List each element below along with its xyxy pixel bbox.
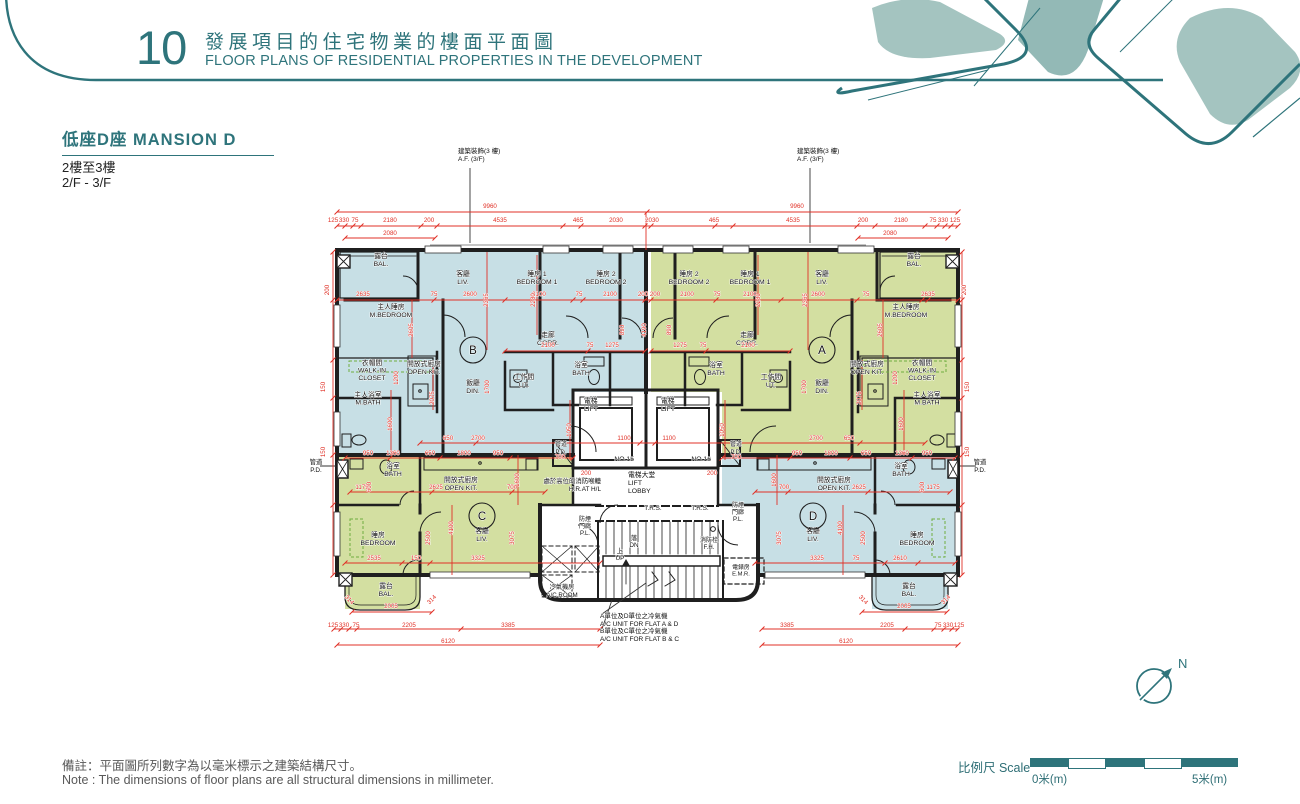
room-label: 開放式廚房OPEN KIT. xyxy=(817,475,851,492)
room-label: 衣帽間WALK-INCLOSET xyxy=(908,358,936,382)
dim-label: 2280 xyxy=(755,293,762,307)
dim-label: 890 xyxy=(619,324,626,335)
scale-segment xyxy=(1106,758,1144,767)
room-label: A單位及D單位之冷氣機A/C UNIT FOR FLAT A & D xyxy=(600,611,679,628)
dim-label: 650 xyxy=(861,450,872,457)
dim-label: 4100 xyxy=(837,521,844,535)
dim-label: 2280 xyxy=(530,293,537,307)
dim-label: 200 xyxy=(324,284,331,295)
room-label: 浴室BATH xyxy=(572,360,590,377)
room-label: 落DN xyxy=(629,533,639,549)
dim-label: 75 xyxy=(700,342,707,349)
room-label: 管道P.D. xyxy=(974,457,987,474)
dim-label: 75 xyxy=(863,291,870,298)
dim-label: 2700 xyxy=(809,435,823,442)
dim-label: 2635 xyxy=(921,291,935,298)
dim-label: 1360 xyxy=(895,450,909,457)
dim-label: 3325 xyxy=(810,555,824,562)
dim-label: 200 xyxy=(581,470,592,477)
room-label: 浴室BATH xyxy=(384,461,402,478)
dim-label: 2075 xyxy=(856,391,863,405)
dim-label: 200 xyxy=(961,284,968,295)
dim-label: 1275 xyxy=(605,342,619,349)
room-label: 露台BAL. xyxy=(907,251,922,268)
dim-label: 200 xyxy=(650,291,661,298)
room-label: 電梯LIFT xyxy=(584,396,598,413)
dim-label: 2535 xyxy=(367,555,381,562)
room-label: 飯廳DIN. xyxy=(466,378,480,395)
dim-label: 2625 xyxy=(852,484,866,491)
dim-label: 3385 xyxy=(501,622,515,629)
dim-label: 1600 xyxy=(771,473,778,487)
dim-label: 125 xyxy=(950,217,961,224)
dim-label: 950 xyxy=(922,450,933,457)
room-label: T.R.S. xyxy=(691,505,709,512)
room-label: T.R.S. xyxy=(644,505,662,512)
dim-label: 2205 xyxy=(880,622,894,629)
dim-label: 330 xyxy=(339,217,350,224)
page: 10 發展項目的住宅物業的樓面平面圖 FLOOR PLANS OF RESIDE… xyxy=(0,0,1300,804)
dim-label: 200 xyxy=(424,217,435,224)
room-label: 浴室BATH xyxy=(707,360,725,377)
dim-label: 1175 xyxy=(926,484,940,491)
room-label: 電錶房E.M.R. xyxy=(732,563,750,578)
flat-letter: B xyxy=(469,345,477,357)
dim-label: 650 xyxy=(425,450,436,457)
dim-label: 1050 xyxy=(719,423,726,437)
dim-label: 125 xyxy=(954,622,965,629)
dim-label: 600 xyxy=(919,481,926,492)
dim-label: 2100 xyxy=(680,291,694,298)
page-title-zh: 發展項目的住宅物業的樓面平面圖 xyxy=(205,27,558,54)
dim-label: 1100 xyxy=(662,435,676,442)
dim-label: 150 xyxy=(964,381,971,392)
dim-label: 2365 xyxy=(802,293,809,307)
room-label: 露台BAL. xyxy=(902,581,917,598)
note-en: Note : The dimensions of floor plans are… xyxy=(62,773,494,787)
dim-label: 2180 xyxy=(383,217,397,224)
room-label: 開放式廚房OPEN KIT. xyxy=(850,359,884,376)
dim-label: 330 xyxy=(938,217,949,224)
room-label: NO.15 xyxy=(614,456,634,463)
room-label: 主人浴室M.BATH xyxy=(913,390,940,407)
dim-label: 465 xyxy=(573,217,584,224)
room-label: 上UP xyxy=(616,546,625,562)
dim-label: 2205 xyxy=(402,622,416,629)
dim-label: 890 xyxy=(666,324,673,335)
dim-label: 3385 xyxy=(780,622,794,629)
dim-label: 1100 xyxy=(617,435,631,442)
dim-label: 200 xyxy=(707,470,718,477)
dim-label: 4535 xyxy=(786,217,800,224)
room-label: 飯廳DIN. xyxy=(815,378,829,395)
room-label: 建築裝飾(3 樓)A.F. (3/F) xyxy=(797,146,839,163)
dim-label: 1200 xyxy=(393,371,400,385)
scale-segment xyxy=(1068,758,1106,769)
scale-zero-label: 0米(m) xyxy=(1032,771,1067,787)
dim-label: 950 xyxy=(363,450,374,457)
dim-label: 3325 xyxy=(471,555,485,562)
dim-label: 2700 xyxy=(471,435,485,442)
dim-label: 3075 xyxy=(509,531,516,545)
dim-label: 650 xyxy=(844,435,855,442)
north-indicator: N xyxy=(1118,648,1208,718)
dim-label: 1275 xyxy=(673,342,687,349)
flat-letter: C xyxy=(478,511,486,523)
dim-label: 700 xyxy=(555,454,566,461)
room-label: 電梯LIFT xyxy=(661,396,675,413)
dim-label: 600 xyxy=(366,481,373,492)
dim-label: 2605 xyxy=(408,323,415,337)
dim-label: 2005 xyxy=(384,603,398,610)
dim-label: 330 xyxy=(339,622,350,629)
dim-label: 2100 xyxy=(603,291,617,298)
dim-label: 950 xyxy=(493,450,504,457)
dim-label: 200 xyxy=(858,217,869,224)
dim-label: 150 xyxy=(411,555,422,562)
dim-label: 1600 xyxy=(898,417,905,431)
room-label: B單位及C單位之冷氣機A/C UNIT FOR FLAT B & C xyxy=(600,626,679,643)
dim-label: 75 xyxy=(352,217,359,224)
block-title: 低座D座 MANSION D xyxy=(62,126,274,156)
floor-range-zh: 2樓至3樓 xyxy=(62,157,115,176)
room-label: 客廳LIV. xyxy=(456,269,470,286)
room-label: 客廳LIV. xyxy=(815,269,829,286)
dim-label: 314 xyxy=(857,594,870,607)
room-label: 主人浴室M.BATH xyxy=(354,390,381,407)
dim-label: 75 xyxy=(353,622,360,629)
dim-label: 75 xyxy=(935,622,942,629)
flat-letter: D xyxy=(809,511,817,523)
room-label: 衣帽間WALK-INCLOSET xyxy=(358,358,386,382)
dim-label: 1050 xyxy=(566,423,573,437)
scale-label: 比例尺 Scale xyxy=(958,757,1030,776)
scale-bar xyxy=(1030,758,1238,767)
dim-label: 75 xyxy=(714,291,721,298)
dim-label: 2080 xyxy=(383,230,397,237)
dim-label: 950 xyxy=(792,450,803,457)
dim-label: 4535 xyxy=(493,217,507,224)
scale-segment xyxy=(1030,758,1068,767)
dim-label: 314 xyxy=(426,593,439,606)
scale-five-label: 5米(m) xyxy=(1192,771,1227,787)
dim-label: 6120 xyxy=(839,638,853,645)
room-label: 電梯大堂LIFTLOBBY xyxy=(628,470,655,495)
room-label: 開放式廚房OPEN KIT. xyxy=(444,475,478,492)
dim-label: 2600 xyxy=(811,291,825,298)
dim-label: 75 xyxy=(431,291,438,298)
dim-label: 75 xyxy=(853,555,860,562)
dim-label: 650 xyxy=(443,435,454,442)
dim-label: 1360 xyxy=(386,450,400,457)
room-label: 露台BAL. xyxy=(374,251,389,268)
dim-label: 9960 xyxy=(790,203,804,210)
dim-label: 75 xyxy=(587,342,594,349)
dim-label: 150 xyxy=(320,381,327,392)
dim-label: 2625 xyxy=(429,484,443,491)
dim-label: 465 xyxy=(709,217,720,224)
dim-label: 1700 xyxy=(484,380,491,394)
dim-label: 2180 xyxy=(894,217,908,224)
dim-label: 2080 xyxy=(883,230,897,237)
dim-label: 700 xyxy=(779,484,790,491)
dim-label: 1600 xyxy=(387,417,394,431)
dim-label: 200 xyxy=(638,291,649,298)
dim-label: 3075 xyxy=(776,531,783,545)
dim-label: 700 xyxy=(731,454,742,461)
dim-label: 2030 xyxy=(609,217,623,224)
room-label: 管道P.D. xyxy=(310,457,323,474)
dim-label: 2500 xyxy=(860,531,867,545)
dim-label: 1800 xyxy=(824,450,838,457)
flat-letter: A xyxy=(818,345,826,357)
dim-label: 4190 xyxy=(641,323,648,337)
dim-label: 2605 xyxy=(877,323,884,337)
dim-label: 1600 xyxy=(514,473,521,487)
room-label: 防煙門廊P.L. xyxy=(732,501,744,523)
dim-label: 125 xyxy=(328,217,339,224)
dim-label: 1700 xyxy=(801,380,808,394)
room-label: 建築裝飾(3 樓)A.F. (3/F) xyxy=(458,146,500,163)
dim-label: 75 xyxy=(576,291,583,298)
dim-label: 2100 xyxy=(741,342,755,349)
section-number: 10 xyxy=(136,20,186,75)
dim-label: 2600 xyxy=(463,291,477,298)
scale-segment xyxy=(1182,758,1238,767)
room-label: 開放式廚房OPEN KIT. xyxy=(407,359,441,376)
scale-segment xyxy=(1144,758,1182,769)
room-label: 浴室BATH xyxy=(892,461,910,478)
room-label: 冷氣機房A/C ROOM xyxy=(546,583,577,599)
dim-label: 2610 xyxy=(893,555,907,562)
dim-label: 6120 xyxy=(441,638,455,645)
room-label: NO.16 xyxy=(691,456,711,463)
dim-label: 9960 xyxy=(483,203,497,210)
dim-label: 2075 xyxy=(429,391,436,405)
dim-label: 2030 xyxy=(645,217,659,224)
dim-label: 75 xyxy=(930,217,937,224)
dim-label: 2635 xyxy=(356,291,370,298)
dim-label: 150 xyxy=(964,446,971,457)
room-label: 防煙門廊P.L. xyxy=(579,515,591,537)
dim-label: 330 xyxy=(943,622,954,629)
dim-label: 2500 xyxy=(425,531,432,545)
dim-label: 2005 xyxy=(897,603,911,610)
dim-label: 125 xyxy=(328,622,339,629)
room-label: 露台BAL. xyxy=(379,581,394,598)
note-zh: 備註：平面圖所列數字為以毫米標示之建築結構尺寸。 xyxy=(62,755,362,774)
dim-label: 2100 xyxy=(541,342,555,349)
floor-range-en: 2/F - 3/F xyxy=(62,175,111,190)
dim-label: 1800 xyxy=(457,450,471,457)
page-title-en: FLOOR PLANS OF RESIDENTIAL PROPERTIES IN… xyxy=(205,53,703,69)
floor-plan: 露台BAL.客廳LIV.睡房 1BEDROOM 1睡房 2BEDROOM 2主人… xyxy=(290,138,1000,658)
north-label: N xyxy=(1178,656,1187,671)
room-label: 消防栓F.H. xyxy=(700,536,718,551)
dim-label: 150 xyxy=(320,446,327,457)
dim-label: 2365 xyxy=(483,293,490,307)
dim-label: 4100 xyxy=(448,521,455,535)
dim-label: 1200 xyxy=(892,371,899,385)
